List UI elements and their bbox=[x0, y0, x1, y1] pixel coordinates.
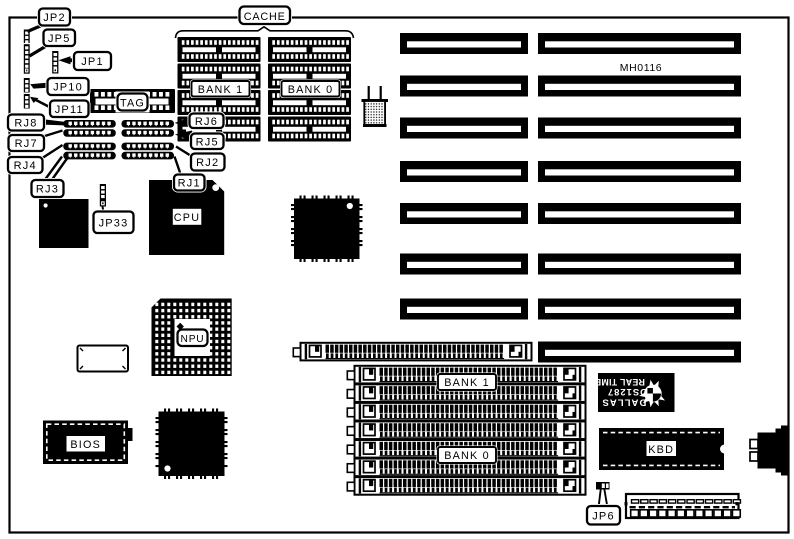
svg-text:BANK 1: BANK 1 bbox=[444, 377, 490, 389]
svg-text:NPU: NPU bbox=[181, 334, 205, 345]
svg-text:CACHE: CACHE bbox=[244, 11, 286, 23]
svg-text:JP5: JP5 bbox=[48, 33, 71, 45]
svg-text:JP11: JP11 bbox=[55, 104, 84, 116]
svg-text:REAL TIME: REAL TIME bbox=[595, 377, 645, 387]
svg-text:RJ8: RJ8 bbox=[14, 118, 37, 130]
svg-text:BANK 1: BANK 1 bbox=[198, 84, 244, 96]
svg-text:RJ5: RJ5 bbox=[196, 136, 219, 148]
svg-text:BANK 0: BANK 0 bbox=[288, 84, 334, 96]
svg-text:CPU: CPU bbox=[174, 212, 200, 224]
svg-text:JP33: JP33 bbox=[99, 217, 129, 229]
svg-text:JP1: JP1 bbox=[81, 56, 104, 68]
svg-text:RJ4: RJ4 bbox=[14, 160, 37, 172]
svg-text:KBD: KBD bbox=[648, 444, 674, 456]
svg-text:RJ1: RJ1 bbox=[178, 178, 201, 190]
svg-text:RJ7: RJ7 bbox=[15, 138, 38, 150]
svg-text:JP10: JP10 bbox=[53, 82, 83, 94]
svg-text:JP6: JP6 bbox=[592, 510, 615, 522]
svg-text:RJ2: RJ2 bbox=[196, 157, 219, 169]
svg-text:RJ6: RJ6 bbox=[195, 116, 218, 128]
svg-text:BIOS: BIOS bbox=[70, 439, 101, 451]
svg-text:RJ3: RJ3 bbox=[36, 184, 59, 196]
svg-text:TAG: TAG bbox=[120, 98, 145, 110]
svg-text:JP2: JP2 bbox=[43, 12, 66, 24]
svg-text:BANK 0: BANK 0 bbox=[444, 450, 490, 462]
svg-text:MH0116: MH0116 bbox=[620, 62, 663, 74]
svg-text:DS1287: DS1287 bbox=[607, 387, 647, 398]
